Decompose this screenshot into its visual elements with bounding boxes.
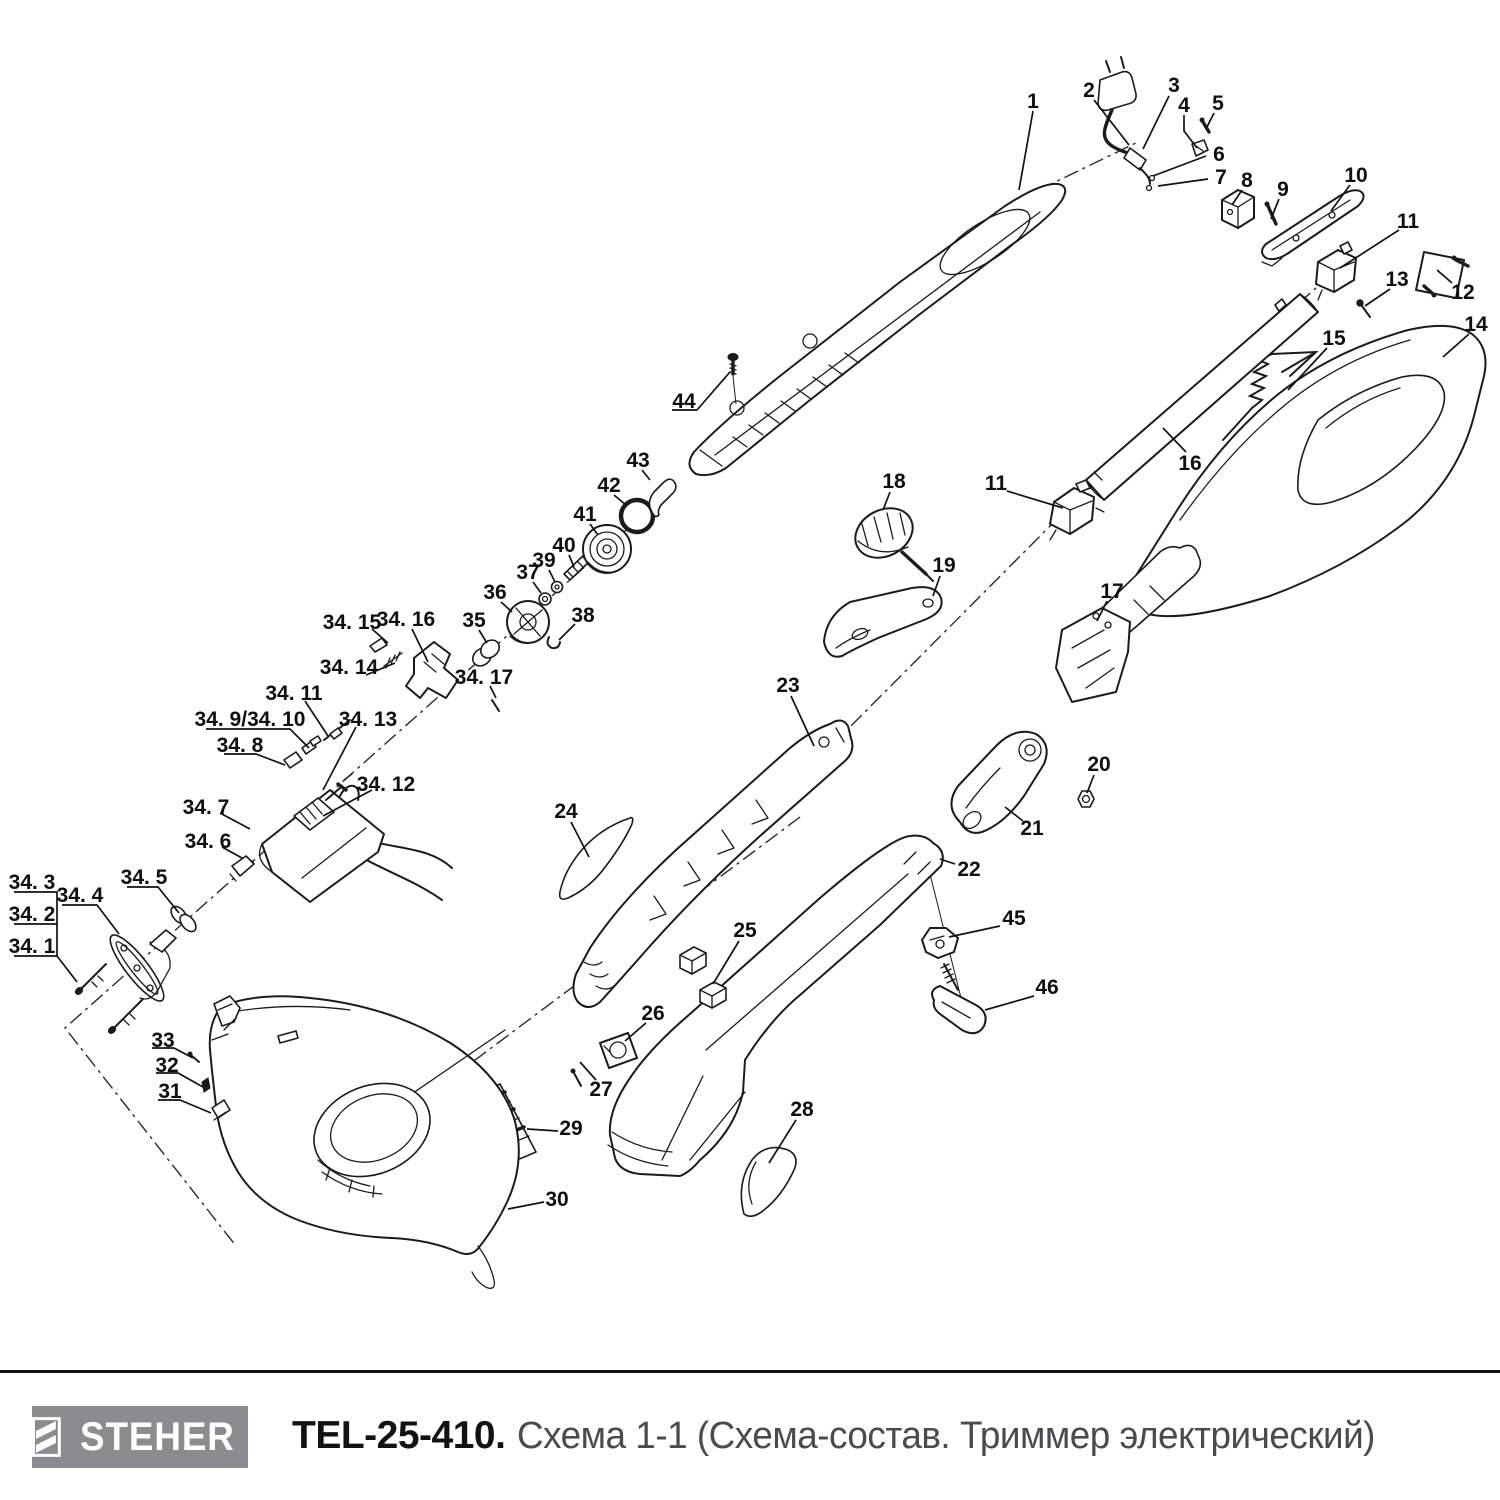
part-label-34-2: 34. 2 (9, 903, 56, 926)
part-label-40: 40 (552, 534, 575, 557)
part-label-23: 23 (776, 674, 799, 697)
part-label-34-11: 34. 11 (265, 682, 323, 705)
part-label-42: 42 (597, 474, 620, 497)
part-label-11b: 11 (985, 472, 1008, 495)
part-label-9: 9 (1277, 178, 1289, 201)
part-label-22: 22 (957, 858, 980, 881)
part-label-24: 24 (554, 800, 578, 823)
schematic-page: 1234567891011121314151611171819202122232… (0, 0, 1500, 1500)
part-label-1: 1 (1027, 90, 1039, 113)
part-label-34-6: 34. 6 (185, 830, 232, 853)
part-label-19: 19 (932, 554, 955, 577)
leader-line-1 (1019, 111, 1033, 190)
part-label-38: 38 (571, 604, 595, 627)
part-label-7: 7 (1215, 166, 1227, 189)
part-power-cord (1098, 57, 1155, 191)
leader-line-3 (1143, 96, 1169, 149)
part-label-33: 33 (151, 1029, 174, 1052)
part-label-36: 36 (483, 581, 506, 604)
leader-line-20 (1087, 775, 1094, 793)
part-safety-guard (210, 996, 519, 1288)
part-label-14: 14 (1464, 313, 1488, 336)
part-clamp-knob (932, 964, 986, 1033)
part-cord-clip (1192, 140, 1208, 156)
part-knob (847, 499, 933, 581)
part-label-20: 20 (1087, 753, 1110, 776)
leader-line-46 (985, 996, 1034, 1010)
part-label-32: 32 (155, 1054, 178, 1077)
part-label-34-5: 34. 5 (121, 866, 168, 889)
part-label-21: 21 (1020, 817, 1044, 840)
part-label-34-4: 34. 4 (57, 884, 104, 907)
leader-line-13 (1365, 289, 1390, 306)
leader-line-29 (527, 1129, 558, 1131)
part-label-12: 12 (1451, 281, 1474, 304)
part-label-27: 27 (589, 1078, 612, 1101)
part-square-washer (600, 1033, 637, 1068)
part-label-34-9-10: 34. 9/34. 10 (195, 708, 306, 731)
part-label-8: 8 (1241, 169, 1253, 192)
part-label-18: 18 (882, 470, 906, 493)
leader-line-11b (1007, 491, 1063, 508)
part-label-34-1: 34. 1 (9, 935, 56, 958)
drawing-title: TEL-25-410. Схема 1-1 (Схема-состав. Три… (292, 1403, 1402, 1469)
part-label-34-12: 34. 12 (357, 773, 415, 796)
part-label-43: 43 (626, 449, 649, 472)
part-label-45: 45 (1002, 907, 1026, 930)
part-cube-spacers (680, 947, 726, 1008)
leader-line-26 (625, 1023, 646, 1041)
part-label-34-7: 34. 7 (183, 796, 230, 819)
part-label-34-14: 34. 14 (320, 656, 379, 679)
part-label-34-13: 34. 13 (339, 708, 397, 731)
leader-line-9 (1271, 199, 1279, 219)
part-label-26: 26 (641, 1002, 664, 1025)
part-label-11: 11 (1397, 210, 1420, 233)
part-deflector-rear (741, 1148, 796, 1217)
part-label-34-16: 34. 16 (377, 608, 435, 631)
part-label-34-8: 34. 8 (217, 734, 264, 757)
part-label-5: 5 (1212, 92, 1224, 115)
part-label-35: 35 (462, 609, 486, 632)
steher-logo-mark-icon (32, 1417, 72, 1457)
part-label-29: 29 (559, 1117, 582, 1140)
footer-bar: STEHER TEL-25-410. Схема 1-1 (Схема-сост… (0, 1370, 1500, 1500)
leader-line-6 (1153, 156, 1206, 176)
leader-line-34-1 (14, 956, 77, 982)
leader-line-45 (949, 926, 1000, 937)
part-label-15: 15 (1322, 327, 1346, 350)
exploded-parts-diagram: 1234567891011121314151611171819202122232… (0, 0, 1500, 1372)
part-screw-27 (571, 1069, 581, 1086)
part-label-25: 25 (733, 919, 757, 942)
part-label-34-17: 34. 17 (455, 666, 513, 689)
part-label-16: 16 (1178, 452, 1201, 475)
leader-line-5 (1206, 113, 1214, 129)
part-label-30: 30 (545, 1188, 568, 1211)
steher-logo: STEHER (32, 1406, 248, 1468)
part-label-6: 6 (1213, 143, 1225, 166)
part-label-2: 2 (1083, 79, 1095, 102)
part-label-17: 17 (1100, 580, 1123, 603)
leader-line-30 (508, 1202, 544, 1209)
leader-line-7 (1158, 179, 1208, 186)
part-label-10: 10 (1344, 164, 1367, 187)
part-deflector-front (560, 818, 633, 900)
part-label-34-3: 34. 3 (9, 871, 56, 894)
part-coupler-upper (1316, 242, 1356, 300)
part-label-44: 44 (672, 390, 696, 413)
model-number: TEL-25-410. (292, 1414, 505, 1458)
leader-line-34-4 (62, 905, 119, 934)
part-label-4: 4 (1178, 94, 1190, 117)
part-screw-13 (1357, 300, 1370, 317)
part-wing-nut (922, 928, 958, 958)
part-label-13: 13 (1385, 268, 1408, 291)
part-label-34-15: 34. 15 (323, 611, 382, 634)
schema-subtitle: Схема 1-1 (Схема-состав. Триммер электри… (517, 1415, 1375, 1458)
part-nut (1078, 791, 1094, 807)
part-label-28: 28 (790, 1098, 814, 1121)
leader-line-34-11 (305, 701, 328, 736)
part-upper-housing (689, 184, 1065, 475)
brand-name: STEHER (80, 1417, 235, 1457)
part-label-46: 46 (1035, 976, 1058, 999)
part-screw-44 (728, 354, 738, 405)
part-shaft-lock (1056, 608, 1130, 702)
part-label-41: 41 (573, 503, 597, 526)
part-clamp-upper (824, 587, 942, 657)
part-label-31: 31 (158, 1080, 182, 1103)
part-screw-9 (1265, 202, 1276, 224)
